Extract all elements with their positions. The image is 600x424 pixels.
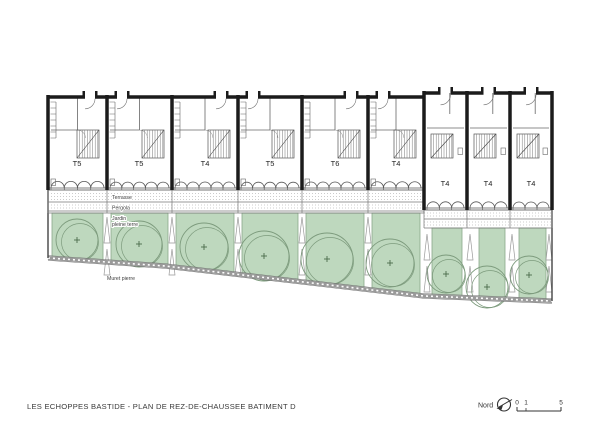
unit-label: T4	[392, 159, 401, 168]
terrasse-label: Terrasse	[112, 195, 132, 201]
pergola-label: Pergola	[112, 206, 130, 212]
scale-bar: 0 1 5	[515, 400, 563, 412]
floor-plan-sheet: T5 T5 T4 T5 T6 T4 T4 T4 T4 Terrasse Perg…	[0, 0, 600, 424]
unit-label: T5	[73, 159, 82, 168]
unit-label: T5	[266, 159, 275, 168]
sheet-title: LES ECHOPPES BASTIDE - PLAN DE REZ-DE-CH…	[27, 402, 296, 411]
scale-tick-label: 0	[515, 400, 519, 407]
north-label: Nord	[478, 403, 493, 410]
unit-interiors-layer	[51, 93, 550, 186]
scale-tick-label: 5	[559, 400, 563, 407]
muret-label: Muret pierre	[107, 276, 135, 282]
floor-plan-drawing: T5 T5 T4 T5 T6 T4 T4 T4 T4 Terrasse Perg…	[0, 0, 600, 424]
unit-label: T4	[484, 179, 493, 188]
scale-tick-label: 1	[524, 400, 528, 407]
unit-label: T5	[135, 159, 144, 168]
unit-label: T4	[527, 179, 536, 188]
unit-label: T6	[331, 159, 340, 168]
unit-label: T4	[441, 179, 450, 188]
unit-label: T4	[201, 159, 210, 168]
jardin-label-line2: pleine terre	[112, 222, 138, 228]
north-arrow-icon: Nord	[478, 398, 512, 411]
